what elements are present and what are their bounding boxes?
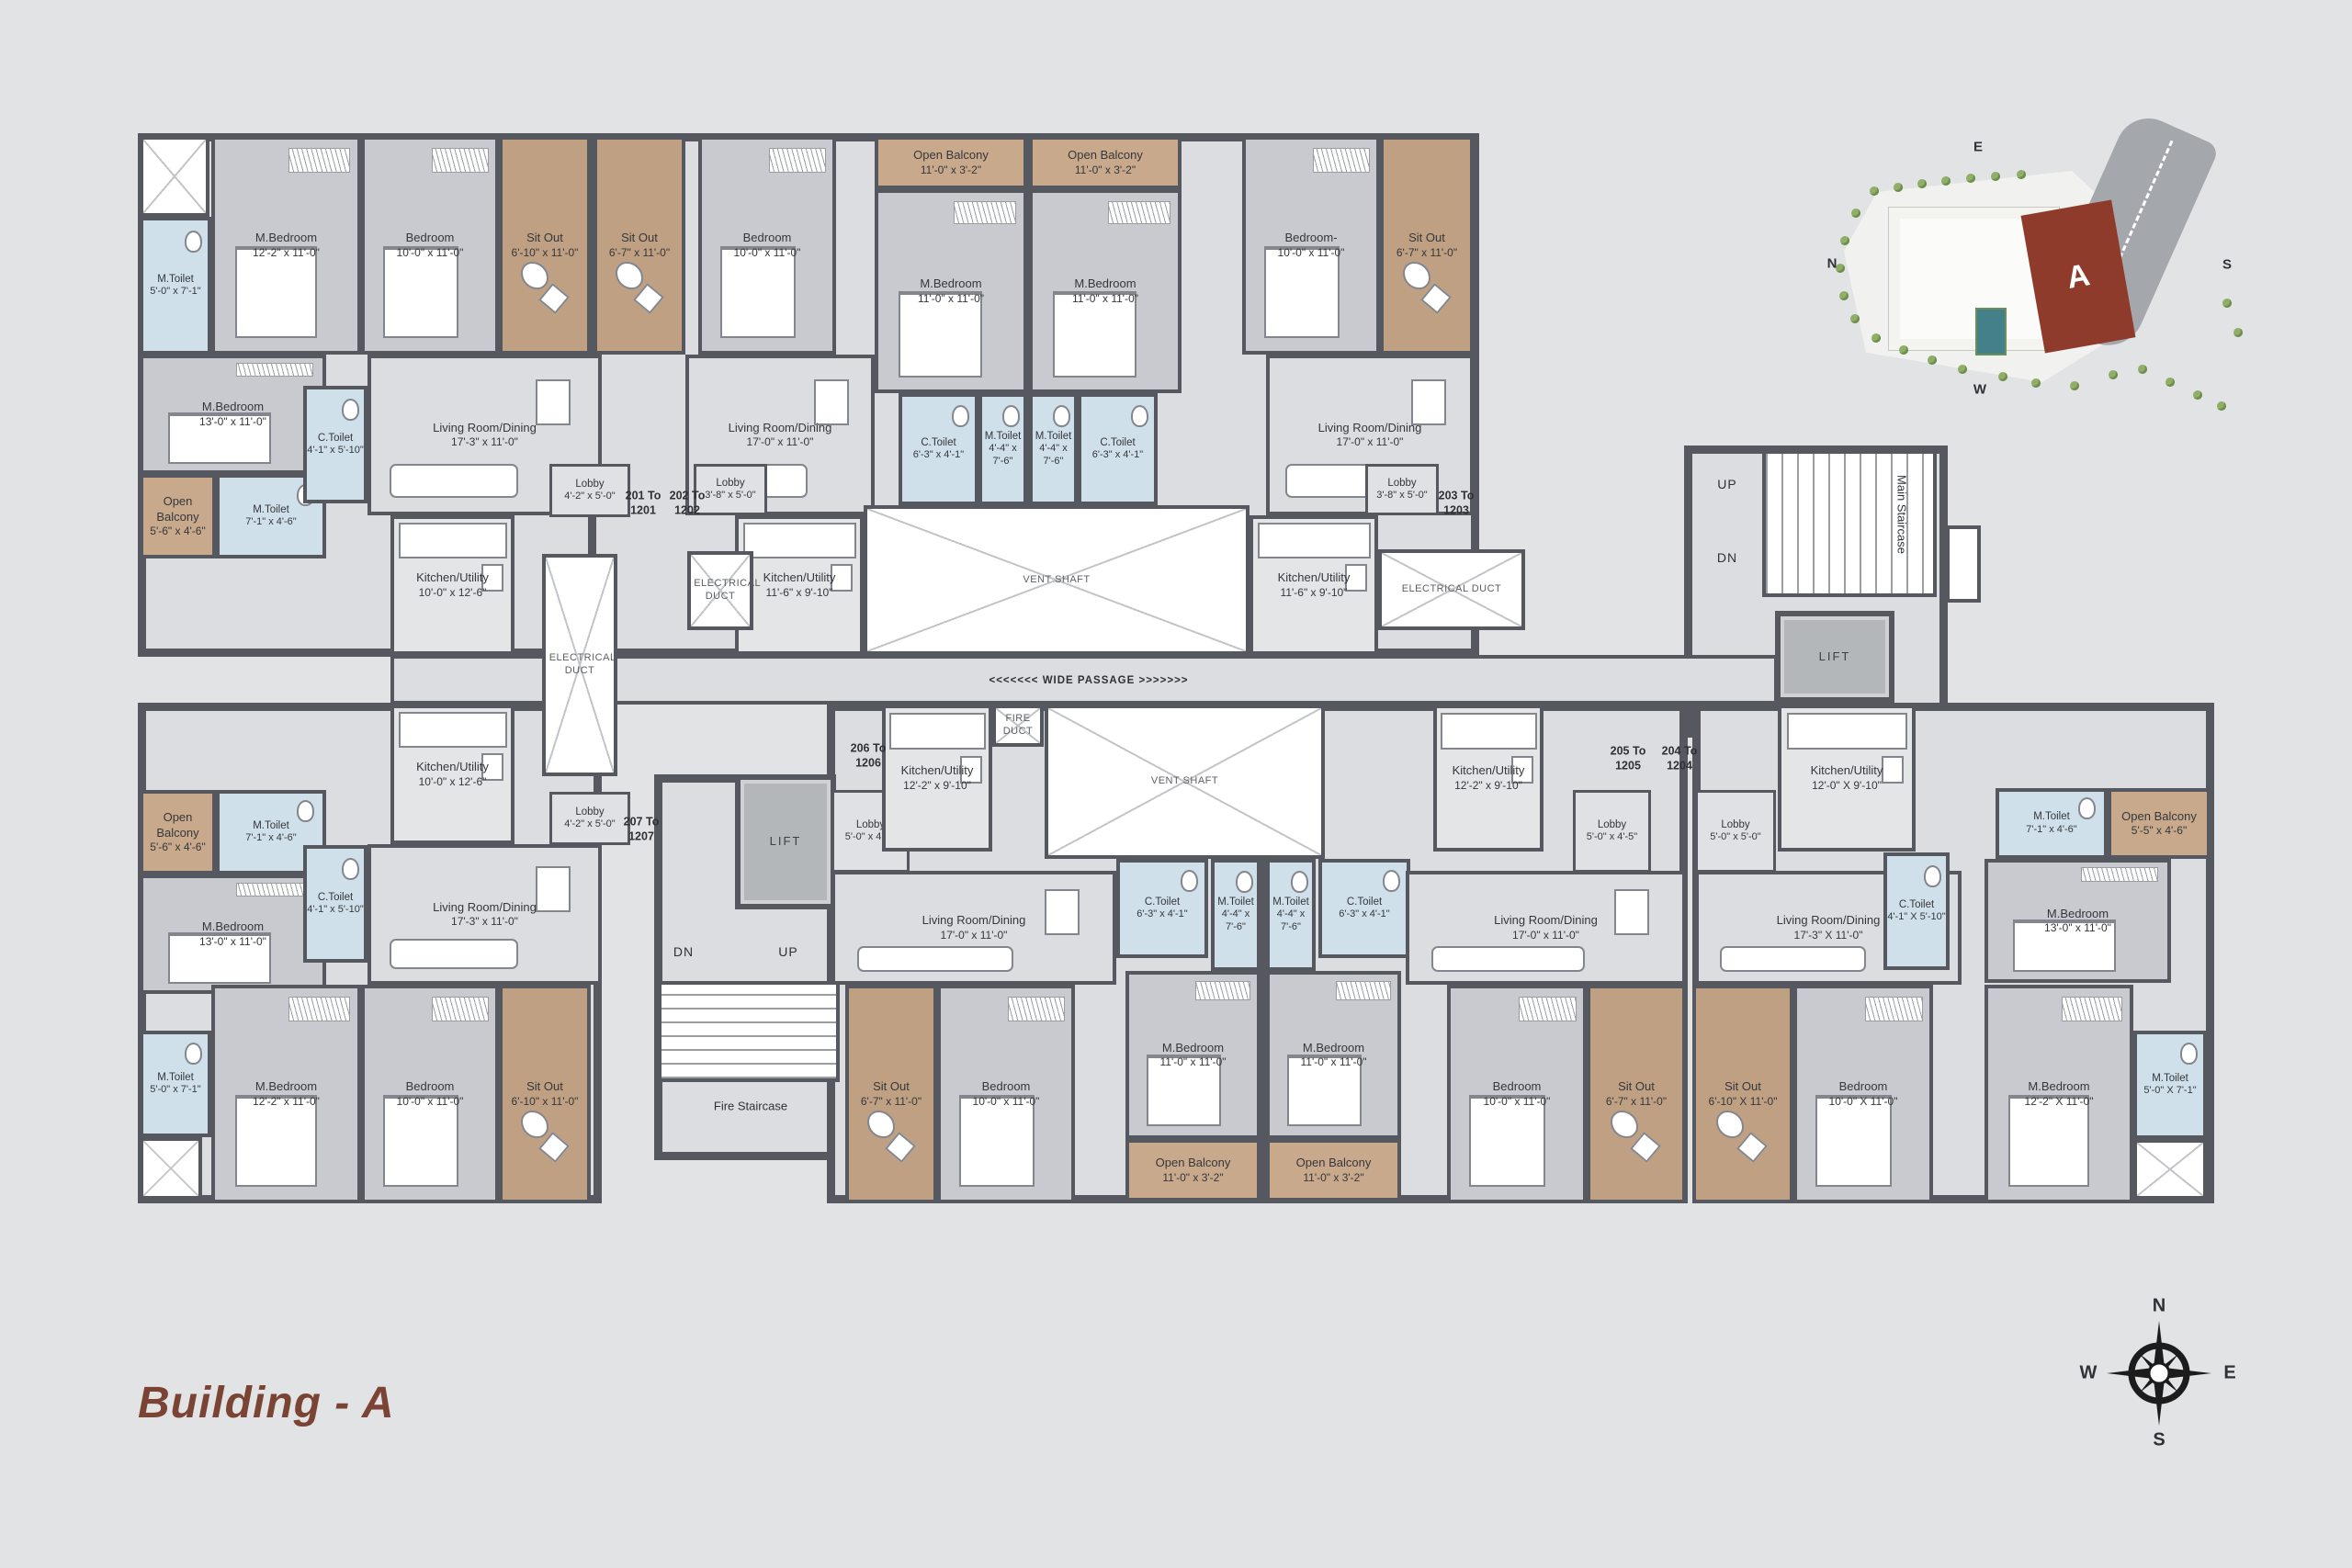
room-dimensions: 17'-3" x 11'-0" <box>451 915 518 929</box>
room-name: Kitchen/Utility <box>416 570 489 585</box>
room-name: M.Bedroom <box>2047 907 2109 921</box>
room-dimensions: 6'-7" x 11'-0" <box>609 246 670 260</box>
room-name: C.Toilet <box>318 432 353 445</box>
room-name: Living Room/Dining <box>1777 913 1881 928</box>
compass-rose: N S W E <box>2099 1314 2219 1433</box>
room-name: Living Room/Dining <box>433 421 537 435</box>
room-name: M.Toilet <box>157 1071 194 1084</box>
vent-shaft-room: VENT SHAFT <box>1045 705 1325 859</box>
tree-icon <box>2165 378 2175 387</box>
room-dimensions: 11'-0" x 11'-0" <box>1072 292 1138 306</box>
room-name: M.Toilet <box>1217 896 1254 908</box>
tree-icon <box>1928 355 1937 365</box>
room-name: Sit Out <box>873 1079 910 1094</box>
room-name: Bedroom <box>1493 1079 1542 1094</box>
tree-icon <box>2222 299 2232 308</box>
room-dimensions: 17'-0" x 11'-0" <box>1512 929 1579 942</box>
m-bedroom-room: M.Bedroom13'-0" x 11'-0" <box>140 355 326 474</box>
sit-out-room: Sit Out6'-7" x 11'-0" <box>594 136 685 355</box>
room-name: Open Balcony <box>913 148 989 163</box>
c-toilet-room: C.Toilet4'-1" x 5'-10" <box>303 845 367 963</box>
electrical-duct-room: ELECTRICAL DUCT <box>1378 549 1525 630</box>
room-name: C.Toilet <box>921 436 955 449</box>
room-name: Lobby <box>1387 477 1416 490</box>
c-toilet-room: C.Toilet6'-3" x 4'-1" <box>1116 859 1208 958</box>
room-name: Open Balcony <box>1068 148 1143 163</box>
tree-icon <box>2070 381 2079 390</box>
tree-icon <box>1836 264 1845 273</box>
room-name: ELECTRICAL DUCT <box>694 578 747 604</box>
sit-out-room: Sit Out6'-10" x 11'-0" <box>499 136 591 355</box>
tree-icon <box>1998 372 2007 381</box>
fire-duct-room: FIRE DUCT <box>992 705 1044 747</box>
room-dimensions: 10'-0" x 11'-0" <box>1278 246 1345 260</box>
bedroom-room: Bedroom10'-0" x 11'-0" <box>1447 985 1587 1203</box>
living-room-dining-room: Living Room/Dining17'-0" x 11'-0" <box>1406 871 1686 985</box>
room-name: Kitchen/Utility <box>1278 570 1351 585</box>
room-dimensions: 4'-4" x 7'-6" <box>1033 443 1074 468</box>
m-bedroom-room: M.Bedroom13'-0" x 11'-0" <box>140 874 326 994</box>
m-toilet-room: M.Toilet5'-0" x 7'-1" <box>140 217 211 355</box>
room-name: Open Balcony <box>2121 809 2197 824</box>
room-name: Lobby <box>1598 818 1626 831</box>
tree-icon <box>2217 401 2226 411</box>
room-name: M.Bedroom <box>1303 1041 1364 1055</box>
room-dimensions: 6'-10" X 11'-0" <box>1709 1095 1778 1109</box>
room-name: Lobby <box>856 818 885 831</box>
site-dir-east: E <box>1973 140 1983 155</box>
m-toilet-room: M.Toilet7'-1" x 4'-6" <box>1996 788 2108 859</box>
open-balcony-room: Open Balcony11'-0" x 3'-2" <box>1029 136 1182 189</box>
room-dimensions: 12'-2" X 11'-0" <box>2025 1095 2094 1109</box>
room-dimensions: 11'-0" x 11'-0" <box>918 292 984 306</box>
room-name: C.Toilet <box>1145 896 1180 908</box>
m-bedroom-room: M.Bedroom12'-2" x 11'-0" <box>211 985 361 1203</box>
tree-icon <box>2109 370 2118 379</box>
site-pool <box>1975 308 2007 355</box>
room-dimensions: 17'-0" x 11'-0" <box>1337 435 1404 449</box>
room-dimensions: 6'-10" x 11'-0" <box>512 1095 579 1109</box>
room-dimensions: 5'-0" x 4'-5" <box>1587 831 1637 844</box>
room-dimensions: 11'-0" x 3'-2" <box>1162 1171 1223 1185</box>
tree-icon <box>1899 345 1908 355</box>
open-balcony-room: Open Balcony5'-5" x 4'-6" <box>2108 788 2211 859</box>
sit-out-room: Sit Out6'-10" X 11'-0" <box>1692 985 1793 1203</box>
room-dimensions: 5'-5" x 4'-6" <box>2131 824 2187 838</box>
room-name: Open Balcony <box>1156 1156 1231 1170</box>
room-name: C.Toilet <box>1347 896 1382 908</box>
open-balcony-room: Open Balcony11'-0" x 3'-2" <box>1125 1139 1261 1201</box>
room-dimensions: 11'-0" x 3'-2" <box>1075 164 1136 177</box>
room-dimensions: 6'-3" x 4'-1" <box>1092 449 1143 462</box>
sit-out-room: Sit Out6'-7" x 11'-0" <box>845 985 937 1203</box>
room-dimensions: 4'-1" x 5'-10" <box>307 445 364 457</box>
room-dimensions: 6'-7" x 11'-0" <box>1396 246 1457 260</box>
room-name: Kitchen/Utility <box>1453 763 1525 778</box>
room-dimensions: 17'-0" x 11'-0" <box>747 435 814 449</box>
room-dimensions: 4'-2" x 5'-0" <box>564 818 615 831</box>
compass-icon <box>2099 1314 2219 1433</box>
kitchen-utility-room: Kitchen/Utility11'-6" x 9'-10" <box>1249 515 1378 655</box>
m-toilet-room: M.Toilet4'-4" x 7'-6" <box>1211 859 1261 971</box>
room-name: LIFT <box>1819 649 1851 664</box>
room-dimensions: 12'-2" x 11'-0" <box>253 246 320 260</box>
room-name: Lobby <box>716 477 744 490</box>
c-toilet-room: C.Toilet4'-1" X 5'-10" <box>1883 852 1950 970</box>
tree-icon <box>1958 365 1967 374</box>
m-bedroom-room: M.Bedroom12'-2" X 11'-0" <box>1984 985 2133 1203</box>
room-dimensions: 4'-4" x 7'-6" <box>1215 908 1257 934</box>
room-name: M.Toilet <box>2152 1072 2188 1085</box>
room-dimensions: 13'-0" x 11'-0" <box>199 935 266 949</box>
m-bedroom-room: M.Bedroom12'-2" x 11'-0" <box>211 136 361 355</box>
room-name: M.Bedroom <box>255 1079 317 1094</box>
room-dimensions: 6'-3" x 4'-1" <box>913 449 964 462</box>
room-dimensions: 6'-7" x 11'-0" <box>861 1095 922 1109</box>
site-dir-north: N <box>1827 256 1837 272</box>
room-dimensions: 4'-4" x 7'-6" <box>982 443 1023 468</box>
room-name: Bedroom <box>406 1079 455 1094</box>
kitchen-utility-room: Kitchen/Utility10'-0" x 12'-6" <box>390 515 514 655</box>
room-name: Bedroom <box>406 231 455 245</box>
tree-icon <box>1991 172 2000 181</box>
lobby-room: Lobby4'-2" x 5'-0" <box>549 792 630 845</box>
room-dimensions: 17'-0" x 11'-0" <box>941 929 1008 942</box>
room-name: M.Toilet <box>253 819 289 832</box>
sit-out-room: Sit Out6'-10" x 11'-0" <box>499 985 591 1203</box>
room-name: Lobby <box>1721 818 1749 831</box>
open-balcony-room: Open Balcony5'-6" x 4'-6" <box>140 474 216 558</box>
kitchen-utility-room: Kitchen/Utility12'-2" x 9'-10" <box>1433 705 1543 852</box>
sit-out-room: Sit Out6'-7" x 11'-0" <box>1380 136 1474 355</box>
room-name: Sit Out <box>621 231 658 245</box>
kitchen-utility-room: Kitchen/Utility10'-0" x 12'-6" <box>390 705 514 844</box>
room-name: M.Toilet <box>1272 896 1309 908</box>
room-name: Bedroom <box>743 231 792 245</box>
m-toilet-room: M.Toilet4'-4" x 7'-6" <box>1029 393 1078 505</box>
room-name: Living Room/Dining <box>729 421 832 435</box>
room-name: Kitchen/Utility <box>901 763 974 778</box>
room-name: C.Toilet <box>1100 436 1135 449</box>
room-dimensions: 7'-1" x 4'-6" <box>245 516 296 529</box>
m-toilet-room: M.Toilet4'-4" x 7'-6" <box>1266 859 1316 971</box>
room-dimensions: 10'-0" x 11'-0" <box>397 1095 464 1109</box>
room-dimensions: 11'-0" x 3'-2" <box>921 164 981 177</box>
lobby-room: Lobby3'-8" x 5'-0" <box>1365 464 1439 515</box>
room-dimensions: 12'-0" X 9'-10" <box>1812 779 1882 793</box>
room-name: Living Room/Dining <box>1494 913 1598 928</box>
open-balcony-room: Open Balcony11'-0" x 3'-2" <box>1266 1139 1401 1201</box>
room-dimensions: 12'-2" x 9'-10" <box>1454 779 1522 793</box>
tree-icon <box>1870 186 1879 196</box>
room-name: Open Balcony <box>143 810 212 840</box>
room-name: M.Bedroom <box>1162 1041 1224 1055</box>
room-name: M.Toilet <box>1035 430 1072 443</box>
room-name: Open Balcony <box>143 494 212 525</box>
room-name: M.Bedroom <box>202 400 264 414</box>
room-name: VENT SHAFT <box>1023 574 1090 587</box>
room-dimensions: 11'-6" x 9'-10" <box>766 586 833 600</box>
room-name: M.Toilet <box>157 273 194 286</box>
room-dimensions: 10'-0" x 11'-0" <box>973 1095 1040 1109</box>
room-dimensions: 4'-1" x 5'-10" <box>307 904 364 917</box>
bedroom-room: Bedroom10'-0" X 11'-0" <box>1793 985 1933 1203</box>
room-name: Lobby <box>575 478 604 491</box>
room-dimensions: 11'-0" x 11'-0" <box>1159 1055 1226 1069</box>
electrical-duct-room: ELECTRICAL DUCT <box>687 551 753 630</box>
tree-icon <box>1839 291 1849 300</box>
site-dir-south: S <box>2222 257 2232 273</box>
room-dimensions: 12'-2" x 9'-10" <box>903 779 971 793</box>
stairH-area <box>658 981 840 1082</box>
m-bedroom-room: M.Bedroom11'-0" x 11'-0" <box>1266 971 1401 1139</box>
tree-icon <box>2031 378 2041 388</box>
room-name: FIRE DUCT <box>998 713 1037 739</box>
room-dimensions: 3'-8" x 5'-0" <box>705 490 755 502</box>
bedroom-room: Bedroom10'-0" x 11'-0" <box>698 136 836 355</box>
room-dimensions: 17'-3" x 11'-0" <box>451 435 518 449</box>
bedroom-room: Bedroom10'-0" x 11'-0" <box>361 136 499 355</box>
room-dimensions: 10'-0" x 12'-6" <box>419 586 487 600</box>
room-dimensions: 4'-4" x 7'-6" <box>1270 908 1312 934</box>
room-name: M.Bedroom <box>202 919 264 934</box>
room-dimensions: 13'-0" x 11'-0" <box>199 415 266 429</box>
room-dimensions: 10'-0" x 11'-0" <box>734 246 801 260</box>
room-name: Sit Out <box>1724 1079 1761 1094</box>
tree-icon <box>1966 174 1975 183</box>
m-bedroom-room: M.Bedroom11'-0" x 11'-0" <box>1125 971 1261 1139</box>
room-dimensions: 11'-0" x 3'-2" <box>1303 1171 1363 1185</box>
room-name: M.Bedroom <box>920 276 981 291</box>
bedroom-room: Bedroom10'-0" x 11'-0" <box>361 985 499 1203</box>
site-location-map: A <box>1824 110 2265 423</box>
tree-icon <box>2193 390 2202 400</box>
xbox-area <box>2133 1139 2207 1200</box>
room-dimensions: 7'-1" x 4'-6" <box>245 832 296 845</box>
c-toilet-room: C.Toilet4'-1" x 5'-10" <box>303 386 367 503</box>
room-dimensions: 4'-2" x 5'-0" <box>564 491 615 503</box>
bedroom-room: Bedroom-10'-0" x 11'-0" <box>1242 136 1380 355</box>
room-name: C.Toilet <box>318 891 353 904</box>
tree-icon <box>1851 209 1860 218</box>
room-dimensions: 4'-1" X 5'-10" <box>1887 911 1945 924</box>
room-dimensions: 13'-0" x 11'-0" <box>2044 921 2111 935</box>
lobby-room: Lobby3'-8" x 5'-0" <box>694 464 767 515</box>
room-name: Kitchen/Utility <box>1811 763 1883 778</box>
tree-icon <box>1850 314 1860 323</box>
tree-icon <box>2138 365 2147 374</box>
tree-icon <box>1917 179 1927 188</box>
lobby-room: Lobby4'-2" x 5'-0" <box>549 464 630 517</box>
tree-icon <box>1941 176 1951 186</box>
m-toilet-room: M.Toilet5'-0" x 7'-1" <box>140 1031 211 1137</box>
room-dimensions: 10'-0" x 11'-0" <box>1484 1095 1551 1109</box>
room-name: Kitchen/Utility <box>416 760 489 774</box>
site-dir-west: W <box>1973 382 1986 398</box>
room-dimensions: 10'-0" x 12'-6" <box>419 775 487 789</box>
m-toilet-room: M.Toilet5'-0" X 7'-1" <box>2133 1031 2207 1139</box>
living-room-dining-room: Living Room/Dining17'-0" x 11'-0" <box>831 871 1116 985</box>
page-title: Building - A <box>138 1378 395 1428</box>
room-name: ELECTRICAL DUCT <box>549 652 611 678</box>
c-toilet-room: C.Toilet6'-3" x 4'-1" <box>1318 859 1410 958</box>
tree-icon <box>2017 170 2026 179</box>
room-name: M.Bedroom <box>2028 1079 2089 1094</box>
room-name: Living Room/Dining <box>1318 421 1422 435</box>
c-toilet-room: C.Toilet6'-3" x 4'-1" <box>1078 393 1158 505</box>
room-name: Living Room/Dining <box>922 913 1026 928</box>
room-name: Bedroom <box>982 1079 1031 1094</box>
room-dimensions: 7'-1" x 4'-6" <box>2026 824 2076 837</box>
stairV-area <box>1762 450 1937 597</box>
tree-icon <box>2233 328 2243 337</box>
compass-south: S <box>2153 1430 2165 1451</box>
room-dimensions: 5'-0" x 7'-1" <box>150 1084 200 1097</box>
lobby-room: Lobby5'-0" x 5'-0" <box>1695 790 1776 873</box>
room-dimensions: 6'-3" x 4'-1" <box>1136 908 1187 921</box>
living-room-dining-room: Living Room/Dining17'-3" x 11'-0" <box>367 844 602 985</box>
room-name: LIFT <box>770 834 802 849</box>
room-dimensions: 5'-0" x 5'-0" <box>1710 831 1760 844</box>
room-dimensions: 17'-3" X 11'-0" <box>1794 929 1863 942</box>
bedroom-room: Bedroom10'-0" x 11'-0" <box>937 985 1075 1203</box>
room-dimensions: 6'-7" x 11'-0" <box>1606 1095 1667 1109</box>
room-name: M.Toilet <box>253 503 289 516</box>
room-name: VENT SHAFT <box>1151 775 1218 788</box>
c-toilet-room: C.Toilet6'-3" x 4'-1" <box>899 393 978 505</box>
kitchen-utility-room: Kitchen/Utility12'-2" x 9'-10" <box>882 705 992 852</box>
xbox-area <box>140 136 209 217</box>
room-name: Sit Out <box>1408 231 1445 245</box>
room-dimensions: 10'-0" X 11'-0" <box>1829 1095 1898 1109</box>
room-dimensions: 6'-10" x 11'-0" <box>512 246 579 260</box>
room-name: ELECTRICAL DUCT <box>1402 583 1502 596</box>
room-dimensions: 5'-0" x 7'-1" <box>150 286 200 299</box>
lift-room: LIFT <box>735 774 836 909</box>
room-name: M.Bedroom <box>255 231 317 245</box>
room-name: Open Balcony <box>1296 1156 1372 1170</box>
room-name: Sit Out <box>1618 1079 1655 1094</box>
room-dimensions: 12'-2" x 11'-0" <box>253 1095 320 1109</box>
room-dimensions: 10'-0" x 11'-0" <box>397 246 464 260</box>
compass-east: E <box>2223 1363 2235 1384</box>
room-name: M.Toilet <box>985 430 1022 443</box>
room-name: Bedroom- <box>1284 231 1337 245</box>
open-balcony-room: Open Balcony11'-0" x 3'-2" <box>875 136 1027 189</box>
room-dimensions: 6'-3" x 4'-1" <box>1339 908 1389 921</box>
kitchen-utility-room: Kitchen/Utility12'-0" X 9'-10" <box>1778 705 1916 852</box>
floor-plan-sheet: M.Toilet5'-0" x 7'-1"M.Bedroom12'-2" x 1… <box>0 0 2352 1568</box>
room-dimensions: 11'-6" x 9'-10" <box>1281 586 1348 600</box>
tree-icon <box>1871 333 1881 343</box>
room-name: M.Bedroom <box>1074 276 1136 291</box>
room-dimensions: 5'-6" x 4'-6" <box>150 525 205 538</box>
electrical-duct-room: ELECTRICAL DUCT <box>542 554 617 776</box>
room-name: Living Room/Dining <box>433 900 537 915</box>
room-name: Bedroom <box>1839 1079 1888 1094</box>
m-bedroom-room: M.Bedroom11'-0" x 11'-0" <box>875 189 1027 393</box>
xbox-area <box>140 1137 202 1200</box>
compass-west: W <box>2080 1363 2098 1384</box>
tree-icon <box>1894 183 1903 192</box>
room-name: M.Toilet <box>2033 810 2070 823</box>
m-toilet-room: M.Toilet4'-4" x 7'-6" <box>978 393 1027 505</box>
m-bedroom-room: M.Bedroom13'-0" x 11'-0" <box>1984 859 2171 983</box>
room-dimensions: 5'-0" X 7'-1" <box>2143 1085 2196 1098</box>
room-dimensions: 3'-8" x 5'-0" <box>1376 490 1427 502</box>
room-name: Lobby <box>575 806 604 818</box>
m-bedroom-room: M.Bedroom11'-0" x 11'-0" <box>1029 189 1182 393</box>
room-name: C.Toilet <box>1899 898 1934 911</box>
room-dimensions: 11'-0" x 11'-0" <box>1300 1055 1366 1069</box>
room-name: Sit Out <box>526 231 563 245</box>
lift-room: LIFT <box>1775 611 1894 703</box>
white-area <box>1946 525 1981 603</box>
tree-icon <box>1840 236 1849 245</box>
open-balcony-room: Open Balcony5'-6" x 4'-6" <box>140 790 216 874</box>
room-dimensions: 5'-6" x 4'-6" <box>150 840 205 854</box>
lobby-room: Lobby5'-0" x 4'-5" <box>1573 790 1651 873</box>
sit-out-room: Sit Out6'-7" x 11'-0" <box>1587 985 1686 1203</box>
room-name: Kitchen/Utility <box>763 570 836 585</box>
room-name: Sit Out <box>526 1079 563 1094</box>
compass-north: N <box>2153 1296 2165 1317</box>
site-building-a-label: A <box>2064 257 2093 297</box>
vent-shaft-room: VENT SHAFT <box>864 505 1249 655</box>
